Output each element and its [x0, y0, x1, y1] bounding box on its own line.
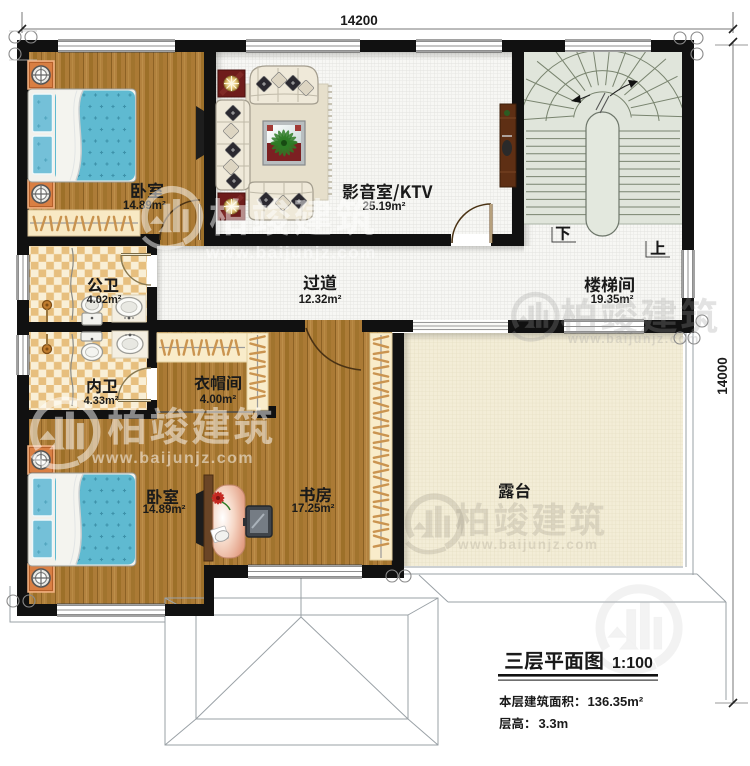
- svg-text:4.02m²: 4.02m²: [87, 294, 122, 306]
- svg-text:14200: 14200: [340, 13, 378, 28]
- svg-text:4.00m²: 4.00m²: [200, 394, 237, 406]
- svg-text:1:100: 1:100: [612, 655, 653, 672]
- svg-text:14000: 14000: [715, 357, 730, 395]
- svg-text:www.baijunjz.com: www.baijunjz.com: [205, 243, 377, 262]
- svg-text:4.33m²: 4.33m²: [84, 395, 119, 407]
- svg-text:www.baijunjz.com: www.baijunjz.com: [91, 450, 254, 467]
- svg-text:www.baijunjz.com: www.baijunjz.com: [567, 332, 700, 346]
- svg-text:www.baijunjz.com: www.baijunjz.com: [457, 537, 599, 552]
- svg-text:12.32m²: 12.32m²: [299, 294, 342, 306]
- svg-text:17.25m²: 17.25m²: [292, 503, 335, 515]
- svg-text:136.35m²: 136.35m²: [588, 694, 644, 709]
- svg-text:3.3m: 3.3m: [539, 716, 569, 731]
- svg-text:14.89m²: 14.89m²: [143, 504, 186, 516]
